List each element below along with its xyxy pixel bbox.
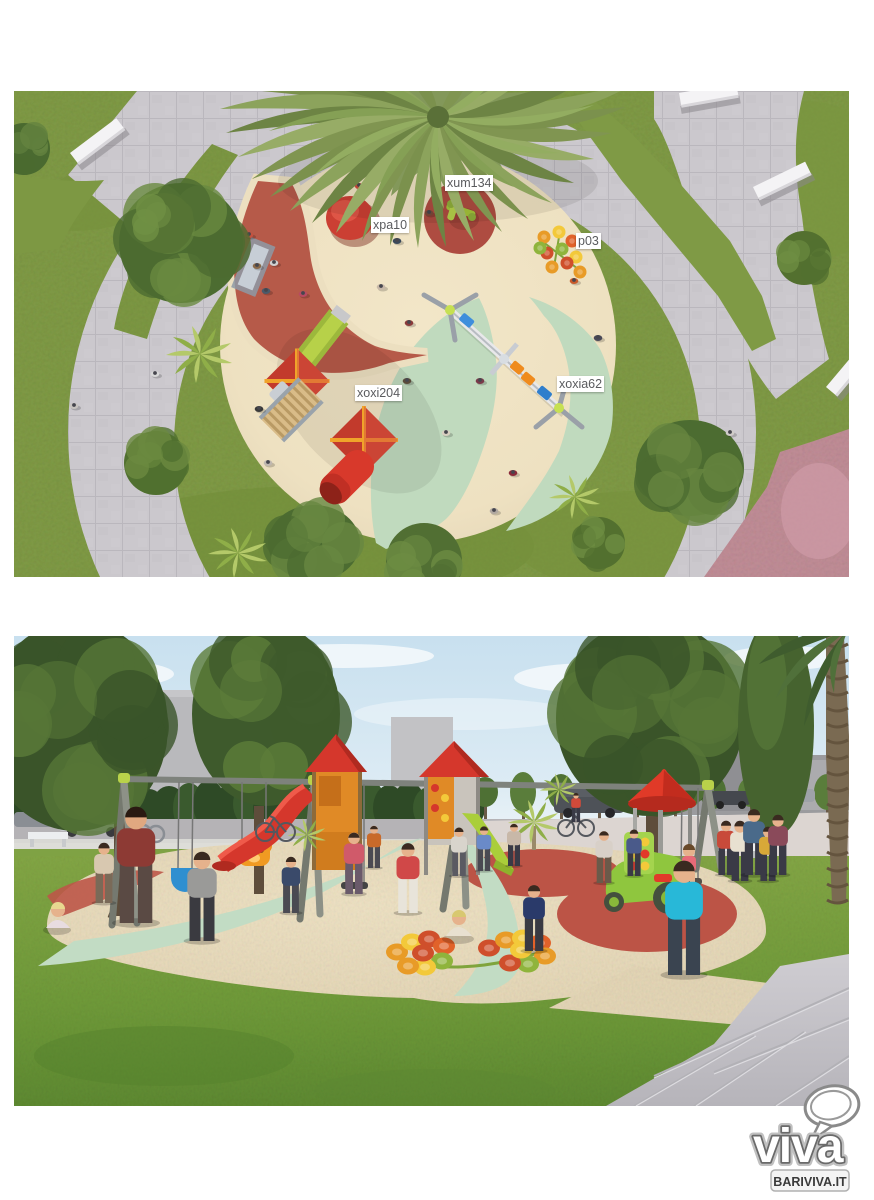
svg-text:BARIVIVA.IT: BARIVIVA.IT <box>773 1175 847 1189</box>
svg-text:viva: viva <box>753 1120 844 1173</box>
